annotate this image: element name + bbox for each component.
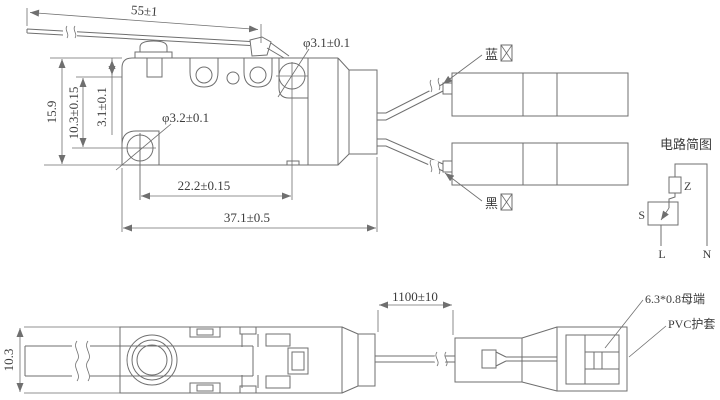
wire-label-blue-group: 蓝 (443, 45, 512, 84)
dim-bottom-hole-dia: φ3.2±0.1 (162, 110, 209, 125)
crimp-housing (455, 338, 522, 382)
side-body (120, 327, 375, 393)
terminal-sleeve-blue (452, 73, 628, 116)
lever-arm (27, 26, 289, 58)
side-end-cap (358, 334, 375, 386)
circuit-diagram: 电路简图 Z S L N (638, 137, 712, 261)
sheath-funnel (522, 327, 557, 391)
dim-total-length: 37.1±0.5 (224, 210, 270, 225)
impedance-symbol (669, 177, 681, 193)
label-wire-blue: 蓝 (485, 47, 498, 62)
wire-blue (377, 78, 452, 120)
dim-left-column: 15.9 10.3±0.15 3.1±0.1 (44, 58, 122, 165)
dim-wire-length: 1100±10 (392, 289, 438, 304)
circuit-title: 电路简图 (660, 137, 712, 152)
circuit-s-label: S (638, 208, 645, 222)
wire-black (377, 139, 452, 174)
spade-terminal-outline (566, 335, 619, 384)
missing-glyph-box (501, 194, 512, 210)
label-terminal: 6.3*0.8母端 (645, 292, 705, 306)
ear-hole-right (250, 67, 266, 83)
switch-symbol (648, 202, 678, 225)
sheath-callout: PVC护套 (629, 317, 715, 357)
dim-hole-spacing: 22.2±0.15 (178, 178, 231, 193)
wire-label-black-group: 黑 (445, 173, 512, 211)
micro-switch-drawing: 55±1 φ3.1±0 (0, 0, 720, 400)
bottom-view: 10.3 1100±10 6.3*0.8母端 (1, 289, 715, 393)
plunger (135, 41, 172, 77)
dim-body-height: 15.9 (44, 101, 59, 124)
switch-body (122, 58, 377, 165)
circuit-n-label: N (703, 247, 712, 261)
dim-wire-length-group: 1100±10 (378, 289, 453, 335)
technical-drawing-page: 55±1 φ3.1±0 (0, 0, 720, 400)
circuit-z-label: Z (684, 179, 691, 193)
label-sheath: PVC护套 (668, 317, 715, 331)
missing-glyph-box (501, 45, 512, 61)
dim-hole-offset: 10.3±0.15 (66, 87, 81, 140)
ear-hole-left (196, 67, 212, 83)
dim-lever-length: 55±1 (130, 2, 158, 19)
lever-hinge-hook (250, 37, 271, 56)
dim-lever-length-group: 55±1 (27, 2, 261, 43)
circuit-l-label: L (658, 247, 665, 261)
label-wire-black: 黑 (485, 196, 498, 211)
body-end-taper (338, 58, 349, 165)
female-terminal-assembly (455, 327, 627, 391)
dim-side-height-group: 10.3 (1, 327, 120, 393)
dim-side-height: 10.3 (1, 349, 16, 372)
top-view: 55±1 φ3.1±0 (27, 2, 628, 232)
dim-bottom-rows: 22.2±0.15 37.1±0.5 (122, 62, 377, 232)
side-wire (375, 352, 455, 366)
center-small-hole (227, 72, 239, 84)
dim-plunger-offset: 3.1±0.1 (94, 87, 109, 127)
pvc-sheath-outline (557, 327, 627, 391)
seal-end-cap (349, 70, 377, 154)
terminal-ears (190, 58, 272, 87)
dim-top-hole-dia: φ3.1±0.1 (303, 35, 350, 50)
switch-contact-arrow (661, 208, 669, 220)
terminal-sleeve-black (452, 143, 628, 185)
mounting-hole-top: φ3.1±0.1 (276, 35, 350, 98)
